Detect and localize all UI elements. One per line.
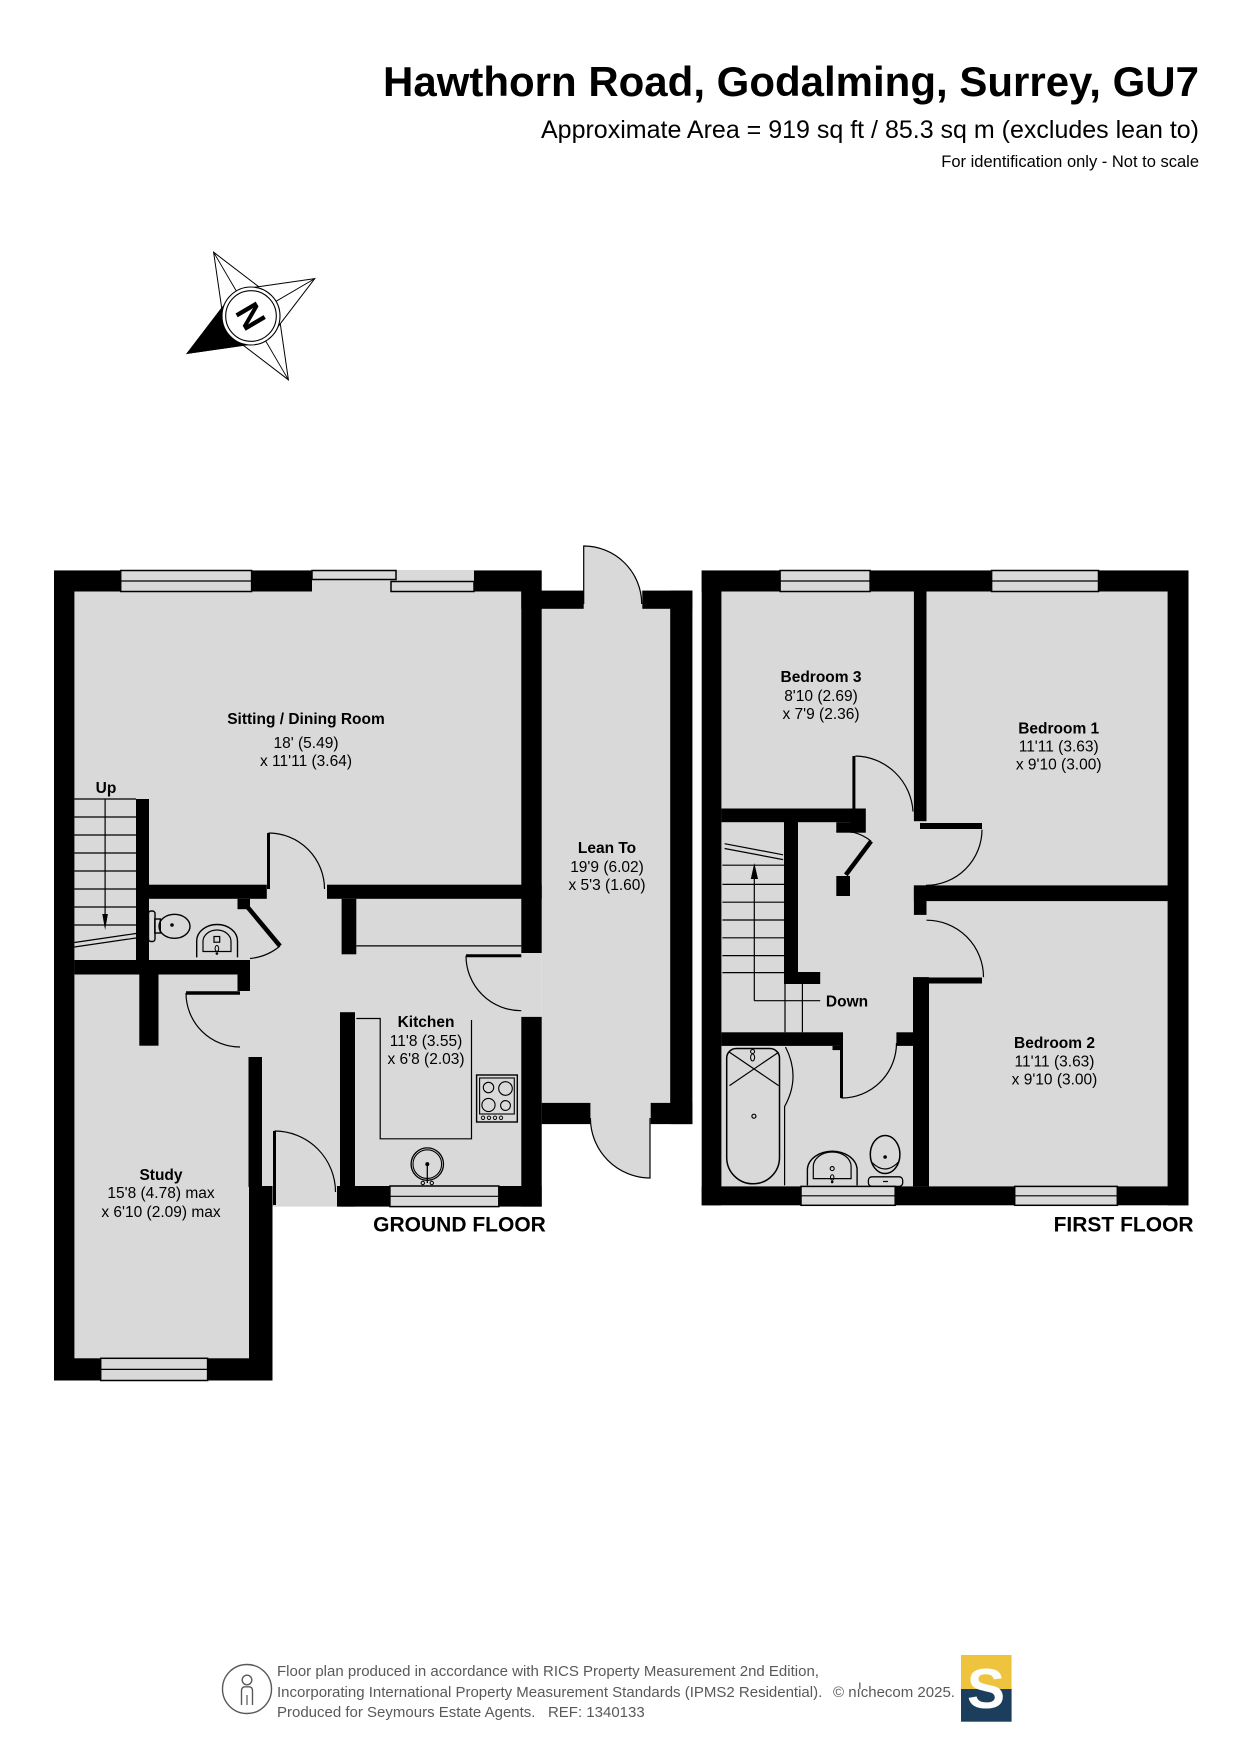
svg-text:Lean To: Lean To	[578, 840, 636, 857]
svg-text:Hawthorn Road, Godalming, Surr: Hawthorn Road, Godalming, Surrey, GU7	[383, 58, 1199, 105]
svg-text:GROUND FLOOR: GROUND FLOOR	[373, 1214, 546, 1237]
svg-text:11'11 (3.63): 11'11 (3.63)	[1019, 739, 1099, 756]
svg-text:For identification only - Not: For identification only - Not to scale	[941, 153, 1199, 171]
svg-text:Produced for Seymours Estate A: Produced for Seymours Estate Agents. REF…	[277, 1704, 645, 1721]
svg-text:x 9'10 (3.00): x 9'10 (3.00)	[1016, 757, 1102, 774]
svg-text:11'11 (3.63): 11'11 (3.63)	[1015, 1054, 1095, 1071]
svg-text:Floor plan produced in accorda: Floor plan produced in accordance with R…	[277, 1663, 819, 1680]
svg-text:8'10 (2.69): 8'10 (2.69)	[784, 688, 858, 705]
svg-text:15'8 (4.78) max: 15'8 (4.78) max	[107, 1185, 214, 1202]
svg-text:FIRST FLOOR: FIRST FLOOR	[1054, 1214, 1194, 1237]
svg-text:Study: Study	[139, 1167, 182, 1184]
svg-text:Bedroom 1: Bedroom 1	[1018, 721, 1099, 738]
svg-text:Bedroom 2: Bedroom 2	[1014, 1035, 1095, 1052]
svg-text:x 5'3 (1.60): x 5'3 (1.60)	[568, 877, 645, 894]
svg-text:19'9 (6.02): 19'9 (6.02)	[570, 859, 644, 876]
svg-text:Kitchen: Kitchen	[398, 1014, 455, 1031]
svg-text:Up: Up	[96, 780, 117, 797]
svg-text:© nıchecom 2025.: © nıchecom 2025.	[833, 1684, 955, 1701]
svg-text:11'8 (3.55): 11'8 (3.55)	[390, 1033, 462, 1050]
svg-text:x 7'9 (2.36): x 7'9 (2.36)	[782, 706, 859, 723]
svg-text:x 6'8 (2.03): x 6'8 (2.03)	[387, 1051, 464, 1068]
svg-text:x 9'10 (3.00): x 9'10 (3.00)	[1012, 1072, 1098, 1089]
svg-text:18' (5.49): 18' (5.49)	[274, 735, 339, 752]
svg-text:Bedroom 3: Bedroom 3	[781, 669, 862, 686]
svg-text:x 6'10 (2.09) max: x 6'10 (2.09) max	[101, 1204, 221, 1221]
svg-text:Approximate Area = 919 sq ft /: Approximate Area = 919 sq ft / 85.3 sq m…	[541, 116, 1199, 144]
svg-text:Down: Down	[826, 993, 868, 1010]
svg-text:Incorporating International Pr: Incorporating International Property Mea…	[277, 1684, 822, 1701]
svg-text:x 11'11 (3.64): x 11'11 (3.64)	[260, 753, 352, 770]
svg-text:Sitting / Dining Room: Sitting / Dining Room	[227, 711, 385, 728]
svg-text:S: S	[967, 1657, 1005, 1721]
